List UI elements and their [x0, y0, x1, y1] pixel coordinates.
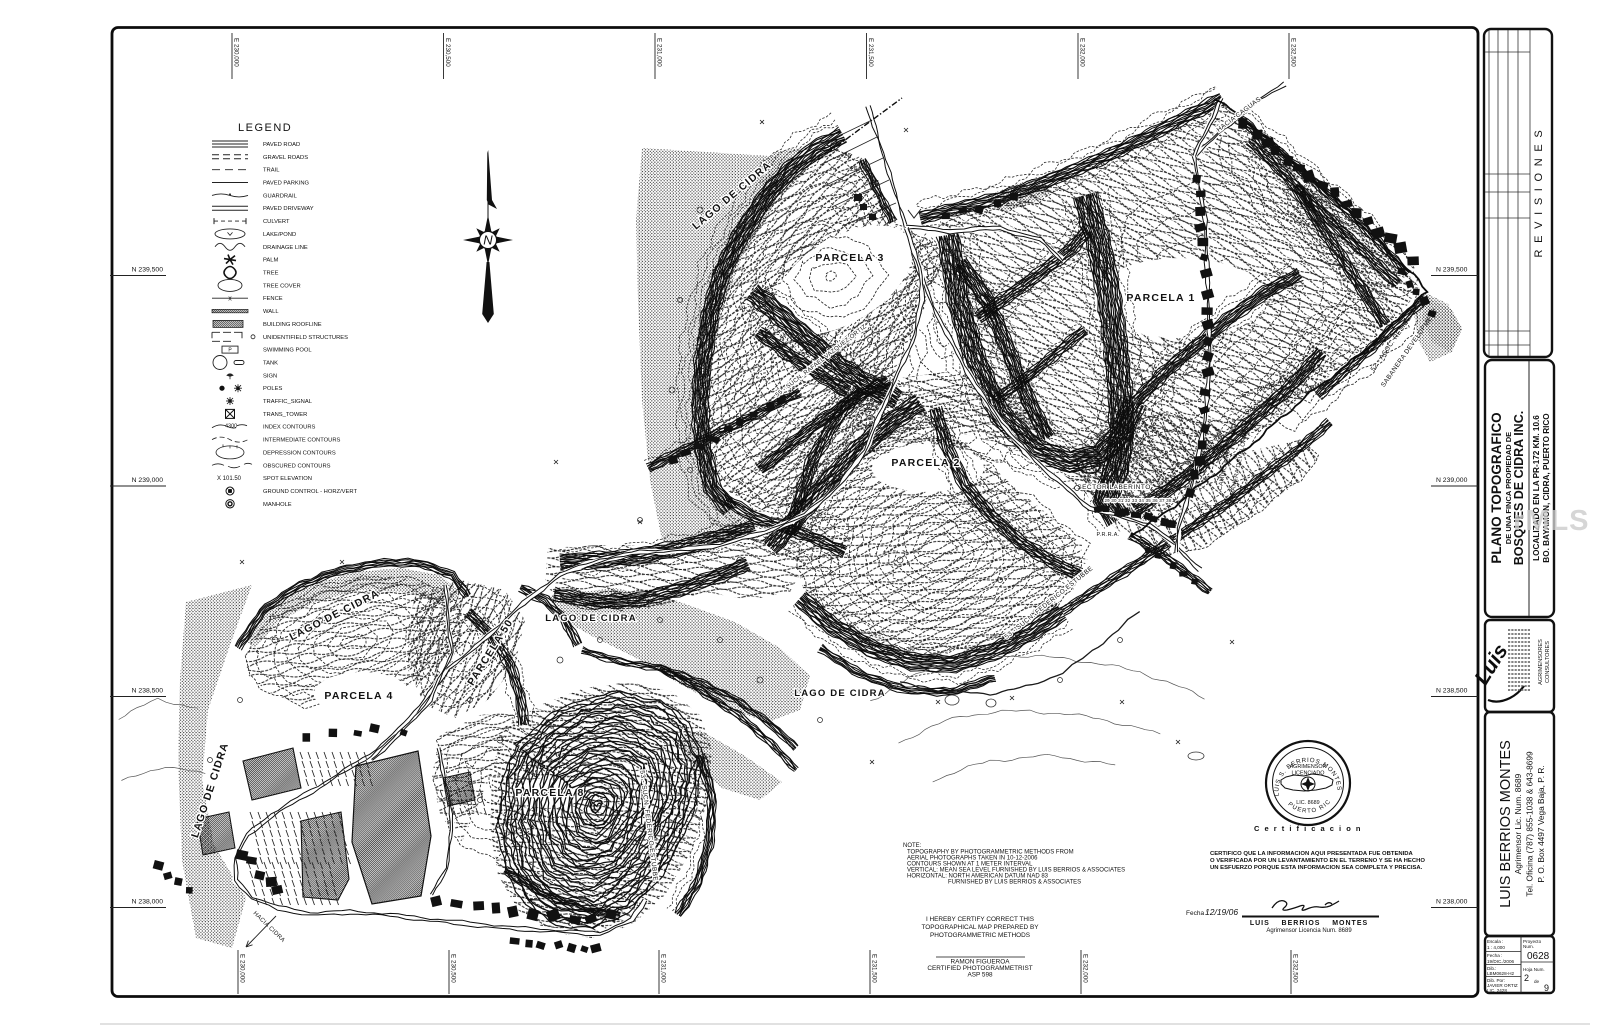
svg-text:E 230,500: E 230,500	[444, 38, 451, 67]
svg-text:TREE: TREE	[263, 271, 279, 277]
svg-text:BOSQUES DE CIDRA INC.: BOSQUES DE CIDRA INC.	[1512, 411, 1526, 565]
svg-text:ASP 598: ASP 598	[967, 972, 993, 979]
svg-text:GROUND CONTROL - HORZ/VERT: GROUND CONTROL - HORZ/VERT	[263, 489, 357, 495]
svg-text:LIC. 2428: LIC. 2428	[1487, 988, 1507, 993]
svg-text:LOCALIZADO EN LA PR-172 KM: LOCALIZADO EN LA PR-172 KM. 10.6	[1532, 415, 1541, 561]
svg-text:LAGO DE CIDRA: LAGO DE CIDRA	[545, 613, 637, 624]
svg-text:PARCELA 2: PARCELA 2	[891, 457, 960, 469]
svg-text:FURNISHED BY LUIS BERRIOS & AS: FURNISHED BY LUIS BERRIOS & ASSOCIATES	[948, 880, 1081, 886]
svg-text:Tel. Oficina (787) 855-1038: Tel. Oficina (787) 855-1038 & 643-8699	[1525, 751, 1535, 897]
svg-text:C e r t i f i c a c i o n: C e r t i f i c a c i o n	[1254, 824, 1362, 833]
svg-text:LAKE/POND: LAKE/POND	[263, 232, 296, 238]
svg-text:2: 2	[1524, 973, 1529, 983]
svg-text:N 238,000: N 238,000	[132, 899, 164, 906]
svg-text:N 239,000: N 239,000	[132, 477, 164, 484]
svg-text:E 231,500: E 231,500	[871, 954, 878, 983]
svg-text:CONSULTORES: CONSULTORES	[1545, 641, 1551, 683]
svg-text:Num.: Num.	[1523, 944, 1534, 949]
svg-text:O VERIFICADA POR UN LEVANTAMIE: O VERIFICADA POR UN LEVANTAMIENTO EN EL …	[1210, 858, 1425, 864]
svg-text:N 238,500: N 238,500	[132, 688, 164, 695]
svg-text:-26: -26	[841, 153, 851, 160]
svg-text:PHOTOGRAMMETRIC METHODS: PHOTOGRAMMETRIC METHODS	[930, 932, 1030, 939]
svg-text:E 230,000: E 230,000	[233, 38, 240, 67]
svg-text:SWIMMING POOL: SWIMMING POOL	[263, 348, 312, 354]
svg-text:AGRIMENSORES: AGRIMENSORES	[1538, 639, 1544, 685]
svg-text:1 : 4,000: 1 : 4,000	[1487, 945, 1505, 950]
svg-text:0628: 0628	[1527, 951, 1550, 962]
svg-text:-24: -24	[869, 180, 879, 187]
svg-text:LIC. 8689: LIC. 8689	[1296, 800, 1319, 806]
svg-text:OBSCURED CONTOURS: OBSCURED CONTOURS	[263, 463, 331, 469]
svg-text:E 231,500: E 231,500	[867, 38, 874, 67]
svg-text:POLES: POLES	[263, 386, 282, 392]
svg-text:PARCELA 4: PARCELA 4	[324, 690, 393, 702]
svg-text:rMLS: rMLS	[1513, 505, 1590, 537]
svg-text:TANK: TANK	[263, 361, 278, 367]
svg-text:Agrimensor Licencia Num. 8689: Agrimensor Licencia Num. 8689	[1266, 928, 1352, 934]
svg-text:N 238,500: N 238,500	[1436, 688, 1468, 695]
svg-text:NOTE:: NOTE:	[903, 843, 922, 849]
svg-text:E 232,500: E 232,500	[1292, 954, 1299, 983]
svg-text:UN ESFUERZO PORQUE ESTA INFOR: UN ESFUERZO PORQUE ESTA INFORMACION SEA …	[1210, 865, 1423, 871]
svg-text:E 230,500: E 230,500	[450, 954, 457, 983]
svg-text:WALL: WALL	[263, 309, 279, 315]
svg-text:TRAIL: TRAIL	[263, 168, 280, 174]
svg-text:PALM: PALM	[263, 258, 279, 264]
svg-text:LEGEND: LEGEND	[238, 122, 292, 134]
svg-text:SPOT ELEVATION: SPOT ELEVATION	[263, 476, 312, 482]
svg-text:UNIDENTIFIELD STRUCTURES: UNIDENTIFIELD STRUCTURES	[263, 335, 348, 341]
svg-text:BUILDING ROOFLINE: BUILDING ROOFLINE	[263, 322, 322, 328]
svg-text:9: 9	[1544, 983, 1549, 993]
svg-text:PARCELA 1: PARCELA 1	[1126, 292, 1195, 304]
svg-text:E 232,500: E 232,500	[1290, 38, 1297, 67]
svg-text:LAGO DE CIDRA: LAGO DE CIDRA	[794, 688, 886, 699]
svg-text:P. O. Box 4497 Vega Baja,: P. O. Box 4497 Vega Baja, P. R.	[1536, 765, 1546, 882]
svg-text:TREE COVER: TREE COVER	[263, 283, 301, 289]
svg-text:N 239,500: N 239,500	[1436, 267, 1468, 274]
svg-text:GUARDRAIL: GUARDRAIL	[263, 193, 298, 199]
svg-text:DRAINAGE LINE: DRAINAGE LINE	[263, 245, 308, 251]
svg-text:de: de	[1534, 979, 1540, 984]
svg-text:LUIS BERRIOS MONTES: LUIS BERRIOS MONTES	[1498, 740, 1514, 908]
svg-text:N 239,500: N 239,500	[132, 267, 164, 274]
svg-text:P.R.R.A.: P.R.R.A.	[1096, 532, 1119, 538]
svg-text:TOPOGRAPHICAL MAP PREPARED BY: TOPOGRAPHICAL MAP PREPARED BY	[922, 924, 1040, 931]
svg-text:29 30 31 32 33 34 35 36 37 38: 29 30 31 32 33 34 35 36 37 38	[1104, 498, 1171, 503]
svg-text:E 232,000: E 232,000	[1079, 38, 1086, 67]
svg-text:SIGN: SIGN	[263, 373, 277, 379]
svg-text:FENCE: FENCE	[263, 296, 283, 302]
svg-text:GRAVEL ROADS: GRAVEL ROADS	[263, 155, 308, 161]
svg-text:4300: 4300	[225, 424, 237, 430]
svg-text:x: x	[228, 296, 232, 303]
svg-text:Hoja Num.: Hoja Num.	[1523, 967, 1545, 972]
svg-text:CULVERT: CULVERT	[263, 219, 290, 225]
svg-text:E 231,000: E 231,000	[656, 38, 663, 67]
svg-text:PAVED ROAD: PAVED ROAD	[263, 142, 300, 148]
svg-text:-27: -27	[828, 139, 838, 146]
svg-text:CERTIFICO QUE LA INFORMACIO: CERTIFICO QUE LA INFORMACION AQUI PRESEN…	[1210, 851, 1414, 857]
svg-text:X 101.50: X 101.50	[217, 476, 242, 482]
svg-text:PARCELA 3: PARCELA 3	[815, 252, 884, 264]
svg-text:INDEX CONTOURS: INDEX CONTOURS	[263, 425, 316, 431]
svg-text:PLANO TOPOGRAFICO: PLANO TOPOGRAFICO	[1489, 412, 1504, 563]
svg-text:Escala :: Escala :	[1487, 939, 1503, 944]
svg-text:TRAFFIC_SIGNAL: TRAFFIC_SIGNAL	[263, 399, 313, 405]
svg-text:AGRIMENSOR: AGRIMENSOR	[1290, 764, 1327, 770]
svg-text:SECTOR LABERINTO: SECTOR LABERINTO	[1077, 484, 1151, 491]
svg-text:PAVED PARKING: PAVED PARKING	[263, 181, 310, 187]
svg-text:N 239,000: N 239,000	[1436, 477, 1468, 484]
svg-text:Agrimensor Lic. Num. 8689: Agrimensor Lic. Num. 8689	[1513, 773, 1523, 874]
svg-text:N 238,000: N 238,000	[1436, 899, 1468, 906]
svg-text:INTERMEDIATE CONTOURS: INTERMEDIATE CONTOURS	[263, 438, 341, 444]
svg-text:N: N	[483, 233, 493, 248]
svg-text:MANHOLE: MANHOLE	[263, 502, 292, 508]
svg-text:BO. BAYAMON, CIDRA, PUERTO: BO. BAYAMON, CIDRA, PUERTO RICO	[1542, 413, 1551, 563]
svg-text:E 231,000: E 231,000	[660, 954, 667, 983]
svg-text:TRANS_TOWER: TRANS_TOWER	[263, 412, 307, 418]
svg-text:I HEREBY CERTIFY CORRECT THIS: I HEREBY CERTIFY CORRECT THIS	[926, 916, 1034, 923]
svg-text:E 230,000: E 230,000	[239, 954, 246, 983]
svg-text:R E V I S I O N E S: R E V I S I O N E S	[1533, 129, 1545, 258]
svg-text:LUIS BERRIOS MONTES: LUIS BERRIOS MONTES	[1250, 920, 1368, 927]
svg-text:LBM0628-H2: LBM0628-H2	[1487, 971, 1515, 976]
svg-text:PAVED DRIVEWAY: PAVED DRIVEWAY	[263, 206, 314, 212]
svg-text:PARCELA 8: PARCELA 8	[515, 787, 584, 799]
svg-text:E 232,000: E 232,000	[1082, 954, 1089, 983]
svg-text:19/DIC./2006: 19/DIC./2006	[1487, 959, 1515, 964]
svg-text:25: 25	[850, 166, 858, 173]
svg-text:Fecha :: Fecha :	[1487, 953, 1502, 958]
svg-text:12/19/06: 12/19/06	[1205, 907, 1238, 917]
svg-text:DEPRESSION CONTOURS: DEPRESSION CONTOURS	[263, 450, 336, 456]
